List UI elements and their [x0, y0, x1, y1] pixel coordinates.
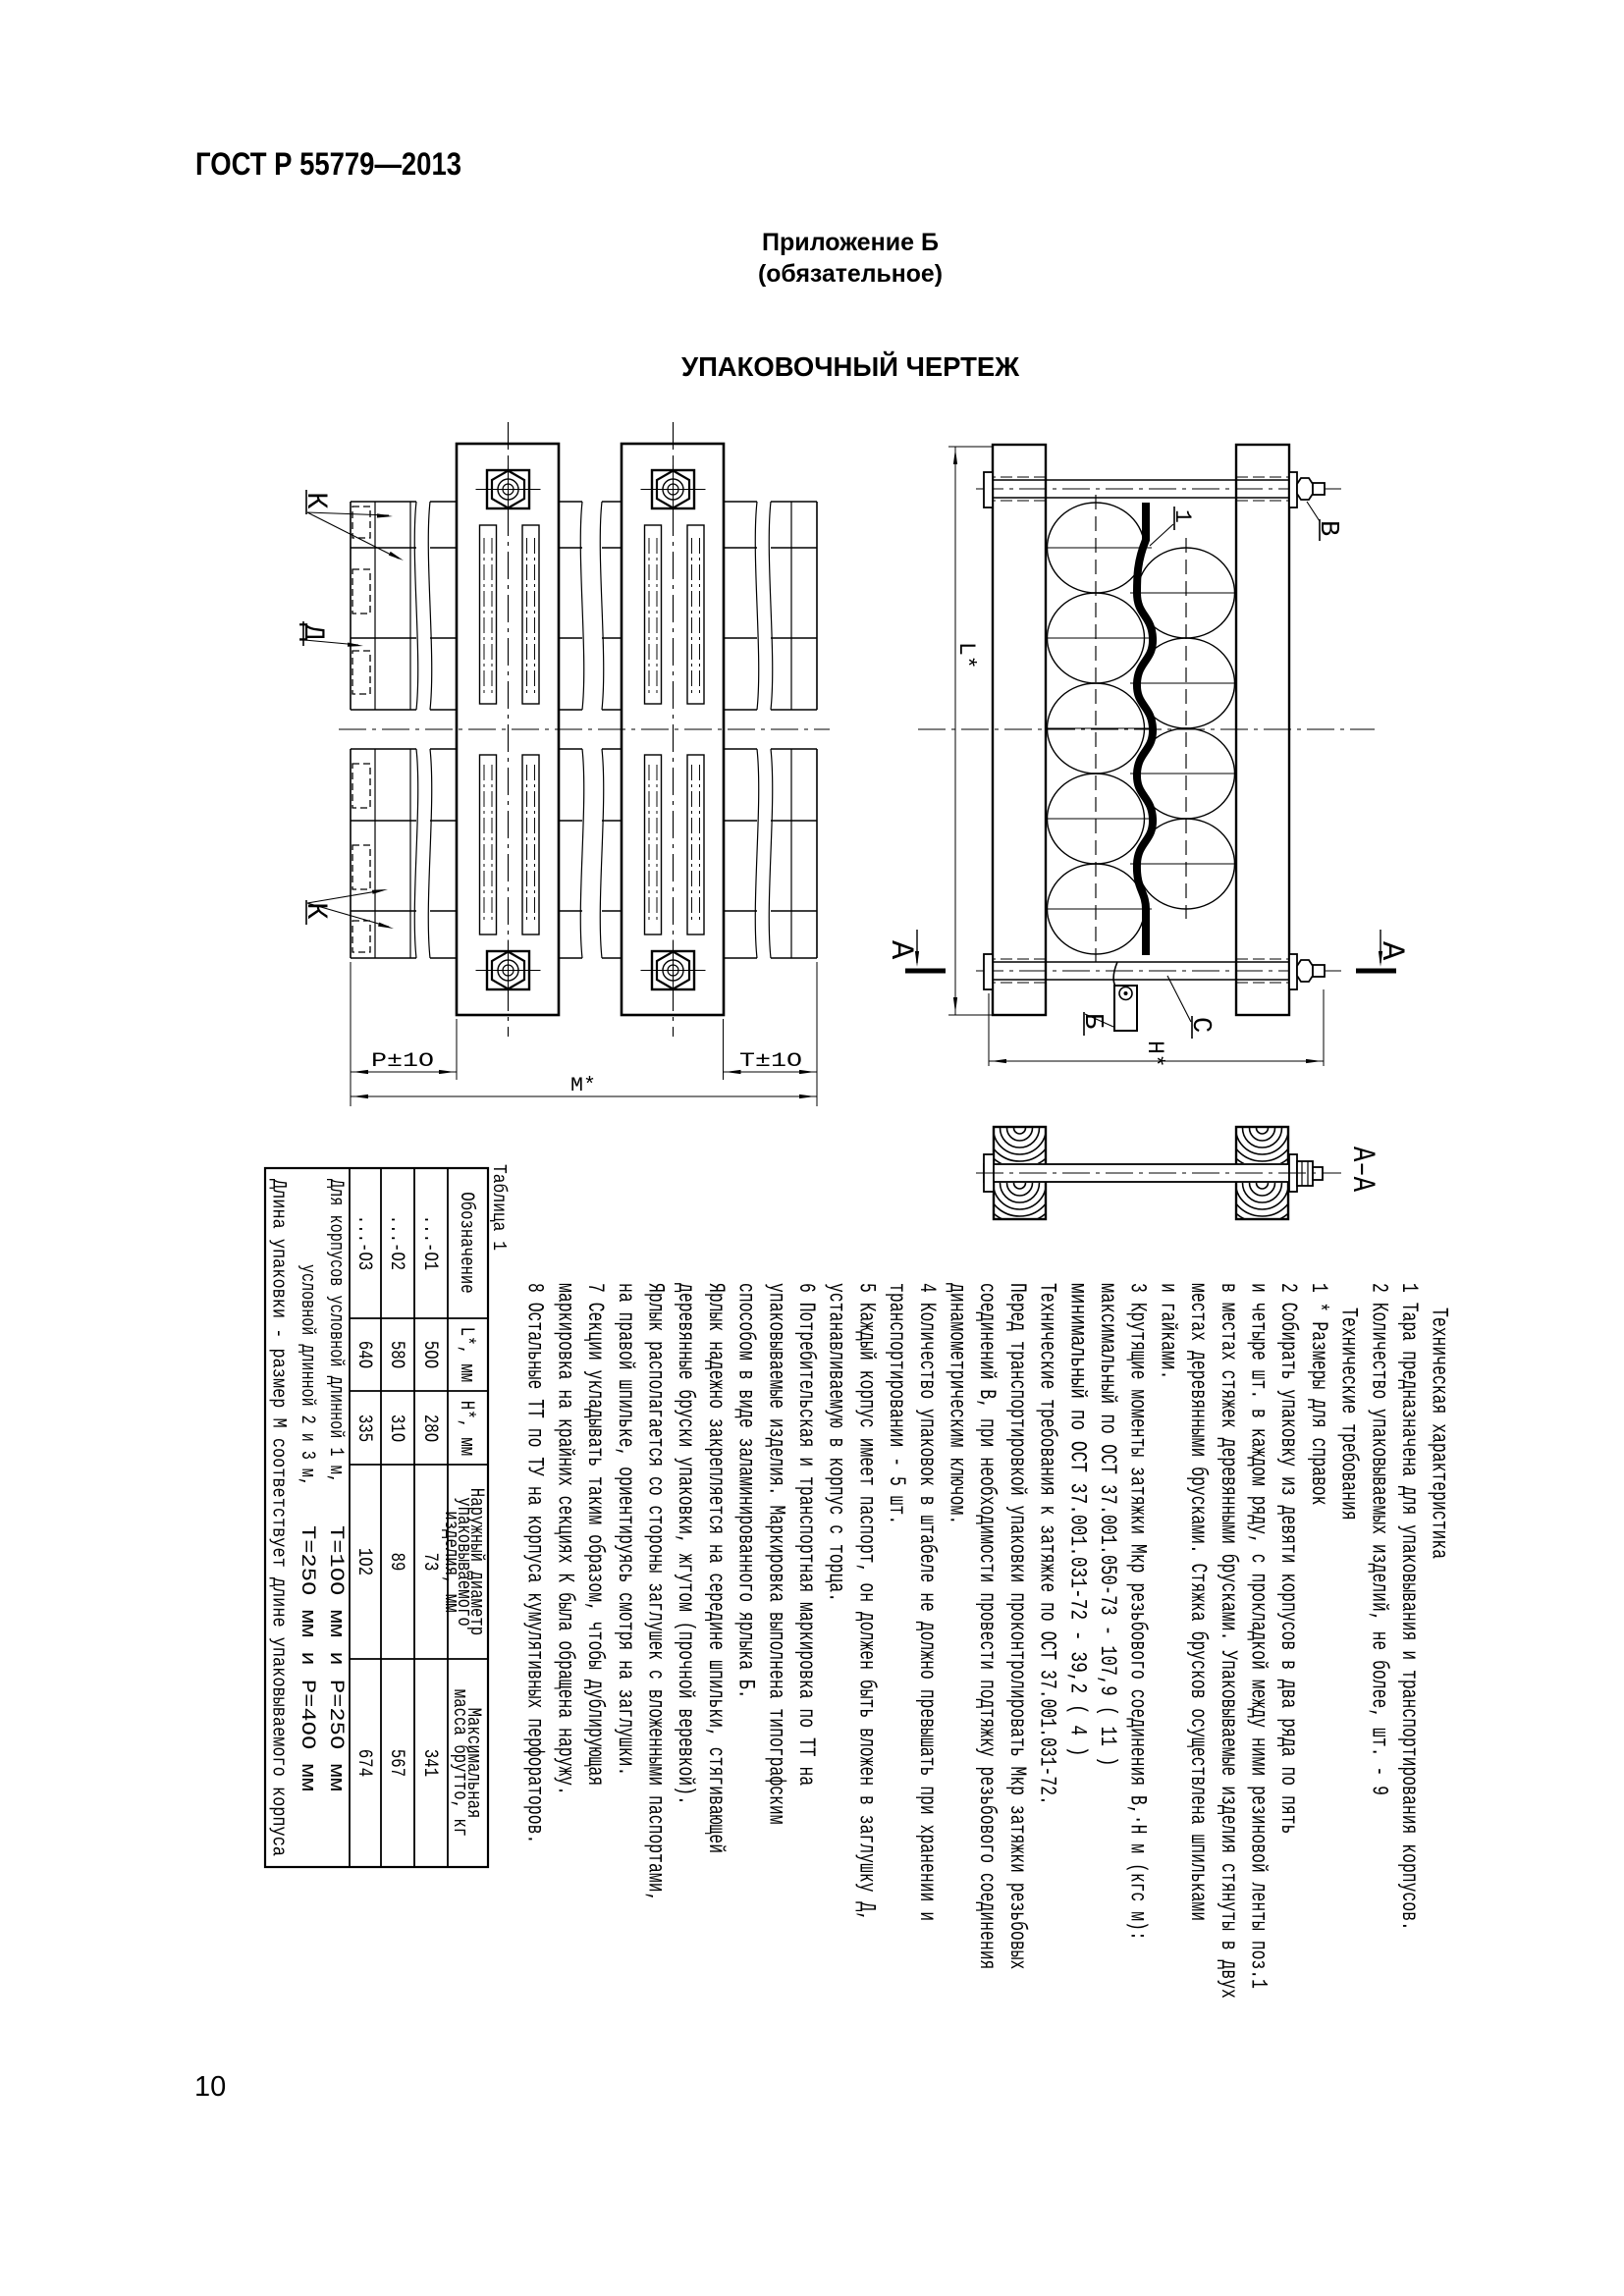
svg-text:С: С — [1185, 1017, 1215, 1033]
svg-text:Технические требования к затяж: Технические требования к затяжке по ОСТ … — [1034, 1283, 1060, 1805]
svg-text:минимальный по ОСТ 37.001.031: минимальный по ОСТ 37.001.031-72 - 39,2 … — [1063, 1283, 1090, 1757]
svg-text:А–А: А–А — [1344, 1147, 1380, 1193]
svg-text:упаковываемые изделия. Маркиро: упаковываемые изделия. Маркировка выполн… — [762, 1283, 788, 1825]
svg-text:5ОО: 5ОО — [418, 1341, 441, 1368]
svg-text:Длина упаковки - размер М соот: Длина упаковки - размер М соответствует … — [267, 1179, 290, 1856]
svg-text:К: К — [298, 492, 332, 509]
svg-text:изделия, мм: изделия, мм — [439, 1511, 461, 1612]
svg-text:Ярлык располагается со стороны: Ярлык располагается со стороны заглушек … — [642, 1283, 669, 1901]
svg-text:(обязательное): (обязательное) — [758, 260, 943, 288]
svg-text:1 Тара предназначена для упако: 1 Тара предназначена для упаковывания и … — [1395, 1283, 1422, 1931]
svg-text:28О: 28О — [418, 1415, 441, 1442]
svg-text:335: 335 — [352, 1415, 375, 1442]
svg-text:58О: 58О — [385, 1341, 407, 1368]
svg-text:Б: Б — [1077, 1013, 1107, 1029]
svg-text:и четыре шт. в каждом ряду, с: и четыре шт. в каждом ряду, с прокладкой… — [1245, 1283, 1272, 1989]
svg-text:3 Крутящие моменты затяжки Мкр: 3 Крутящие моменты затяжки Мкр резьбовог… — [1124, 1283, 1151, 1941]
svg-text:и гайками.: и гайками. — [1154, 1283, 1180, 1380]
svg-text:Т=25О мм и Р=4ОО мм: Т=25О мм и Р=4ОО мм — [296, 1525, 318, 1791]
svg-text:1: 1 — [1169, 509, 1195, 523]
svg-text:соединений В, при необходимост: соединений В, при необходимости провести… — [973, 1283, 1000, 1969]
svg-text:8 Остальные ТТ по ТУ на корпус: 8 Остальные ТТ по ТУ на корпуса кумуляти… — [521, 1283, 548, 1843]
svg-text:31О: 31О — [385, 1415, 407, 1442]
svg-text:10: 10 — [194, 2071, 226, 2103]
svg-text:...-О2: ...-О2 — [385, 1215, 407, 1270]
svg-text:Т±1О: Т±1О — [739, 1050, 802, 1073]
svg-text:масса брутто, кг: масса брутто, кг — [448, 1689, 470, 1837]
svg-text:Технические требования: Технические требования — [1335, 1308, 1362, 1521]
svg-text:местах деревянными брусками. С: местах деревянными брусками. Стяжка брус… — [1184, 1283, 1211, 1921]
svg-text:2 Собирать упаковку из девяти: 2 Собирать упаковку из девяти корпусов в… — [1274, 1283, 1301, 1834]
svg-text:Обозначение: Обозначение — [455, 1192, 477, 1293]
svg-text:Ярлык надежно закрепляется на: Ярлык надежно закрепляется на середине ш… — [702, 1283, 729, 1853]
svg-text:L*, мм: L*, мм — [455, 1327, 477, 1382]
svg-text:64О: 64О — [352, 1341, 375, 1368]
svg-text:6 Потребительская и транспортн: 6 Потребительская и транспортная маркиро… — [792, 1283, 819, 1786]
svg-text:7 Секции укладывать таким обра: 7 Секции укладывать таким образом, чтобы… — [581, 1283, 608, 1786]
svg-text:А: А — [883, 940, 919, 960]
svg-text:маркировка на крайних секциях: маркировка на крайних секциях К была обр… — [551, 1283, 577, 1795]
svg-text:1 * Размеры для справок: 1 * Размеры для справок — [1305, 1283, 1331, 1506]
svg-text:Т=1ОО мм и Р=25О мм: Т=1ОО мм и Р=25О мм — [324, 1525, 347, 1791]
svg-text:1О2: 1О2 — [352, 1548, 375, 1575]
svg-text:Р±1О: Р±1О — [371, 1050, 434, 1073]
svg-text:Д: Д — [296, 623, 329, 641]
svg-text:89: 89 — [385, 1553, 407, 1572]
svg-text:...-О3: ...-О3 — [352, 1215, 375, 1270]
svg-text:устанавливаемую в корпус с тор: устанавливаемую в корпус с торца. — [823, 1283, 849, 1602]
svg-text:674: 674 — [352, 1749, 375, 1777]
svg-text:способом в виде заламинированн: способом в виде заламинированного ярлыка… — [732, 1283, 759, 1699]
svg-text:Н*: Н* — [1142, 1041, 1167, 1068]
svg-text:транспортировании - 5 шт.: транспортировании - 5 шт. — [883, 1283, 909, 1524]
svg-text:динамометрическим ключом.: динамометрическим ключом. — [944, 1283, 970, 1524]
svg-text:максимальный по ОСТ 37.001.050: максимальный по ОСТ 37.001.050-73 - 107,… — [1094, 1283, 1120, 1767]
svg-text:73: 73 — [418, 1553, 441, 1572]
svg-text:2 Количество упаковываемых изд: 2 Количество упаковываемых изделий, не б… — [1365, 1283, 1391, 1795]
svg-text:А: А — [1374, 941, 1410, 961]
svg-text:567: 567 — [385, 1749, 407, 1777]
svg-text:ГОСТ Р 55779—2013: ГОСТ Р 55779—2013 — [195, 146, 461, 182]
svg-text:К: К — [298, 902, 332, 920]
svg-text:в местах стяжек деревянными бр: в местах стяжек деревянными брусками. Уп… — [1215, 1283, 1241, 1999]
svg-text:Для корпусов условной длинной: Для корпусов условной длинной 1 м, — [324, 1179, 347, 1483]
svg-text:...-О1: ...-О1 — [418, 1215, 441, 1270]
svg-text:341: 341 — [418, 1749, 441, 1777]
svg-text:УПАКОВОЧНЫЙ ЧЕРТЕЖ: УПАКОВОЧНЫЙ ЧЕРТЕЖ — [681, 350, 1020, 382]
svg-text:Техническая характеристика: Техническая характеристика — [1426, 1308, 1452, 1559]
svg-text:Приложение Б: Приложение Б — [762, 229, 939, 256]
svg-text:5 Каждый корпус имеет паспорт,: 5 Каждый корпус имеет паспорт, он должен… — [852, 1283, 879, 1921]
svg-text:Таблица 1: Таблица 1 — [488, 1164, 510, 1251]
svg-text:L*: L* — [953, 642, 979, 669]
svg-text:4 Количество упаковок в штабел: 4 Количество упаковок в штабеле не должн… — [913, 1283, 940, 1921]
svg-text:деревянные бруски упаковки, жг: деревянные бруски упаковки, жгутом (проч… — [672, 1283, 698, 1805]
svg-text:В: В — [1313, 520, 1342, 536]
svg-text:условной длинной 2 и 3 м,: условной длинной 2 и 3 м, — [296, 1264, 318, 1486]
svg-text:H*, мм: H*, мм — [455, 1401, 477, 1456]
svg-text:М*: М* — [570, 1075, 596, 1097]
svg-text:Перед транспортировкой упаковк: Перед транспортировкой упаковки проконтр… — [1003, 1283, 1030, 1969]
svg-text:на правой шпильке, ориентируяс: на правой шпильке, ориентируясь смотря н… — [612, 1283, 638, 1776]
